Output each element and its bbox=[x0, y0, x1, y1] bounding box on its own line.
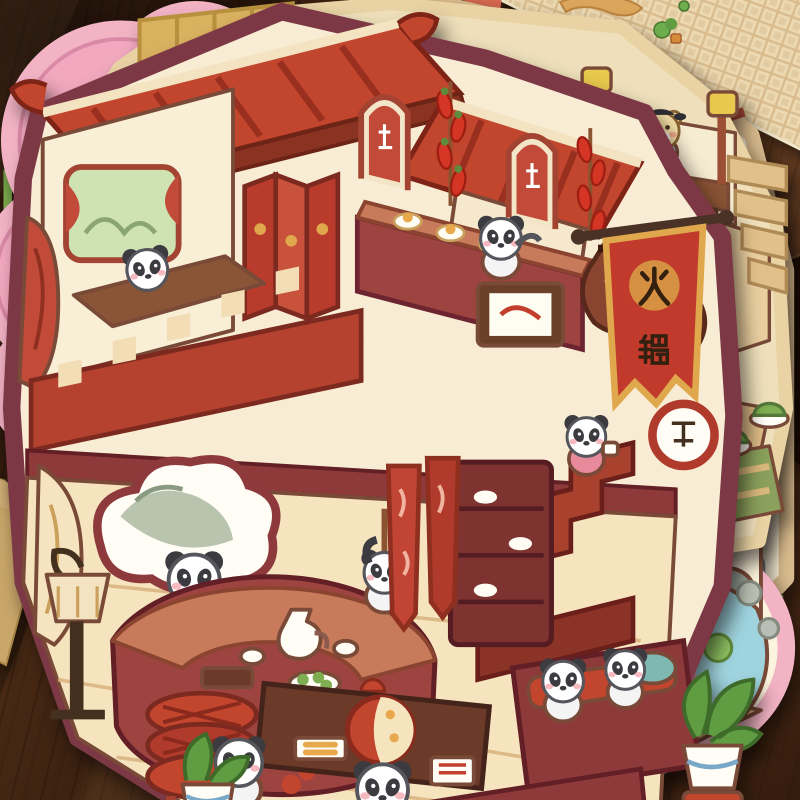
tall-cabinet bbox=[450, 462, 551, 645]
menu-card bbox=[431, 757, 474, 784]
photo-canvas: beige lattice-pattern backing paper (top… bbox=[0, 0, 800, 800]
round-plaque bbox=[652, 404, 714, 466]
arch-window bbox=[361, 97, 408, 190]
sticker-panda-hotpot: Panda hotpot restaurant sticker in red w… bbox=[0, 0, 800, 800]
arch-window bbox=[509, 136, 556, 229]
bench-pandas bbox=[513, 641, 699, 792]
red-folding-screen bbox=[245, 175, 338, 319]
framed-picture bbox=[478, 283, 563, 345]
potted-plant bbox=[683, 672, 761, 800]
dining-panda bbox=[354, 761, 412, 800]
